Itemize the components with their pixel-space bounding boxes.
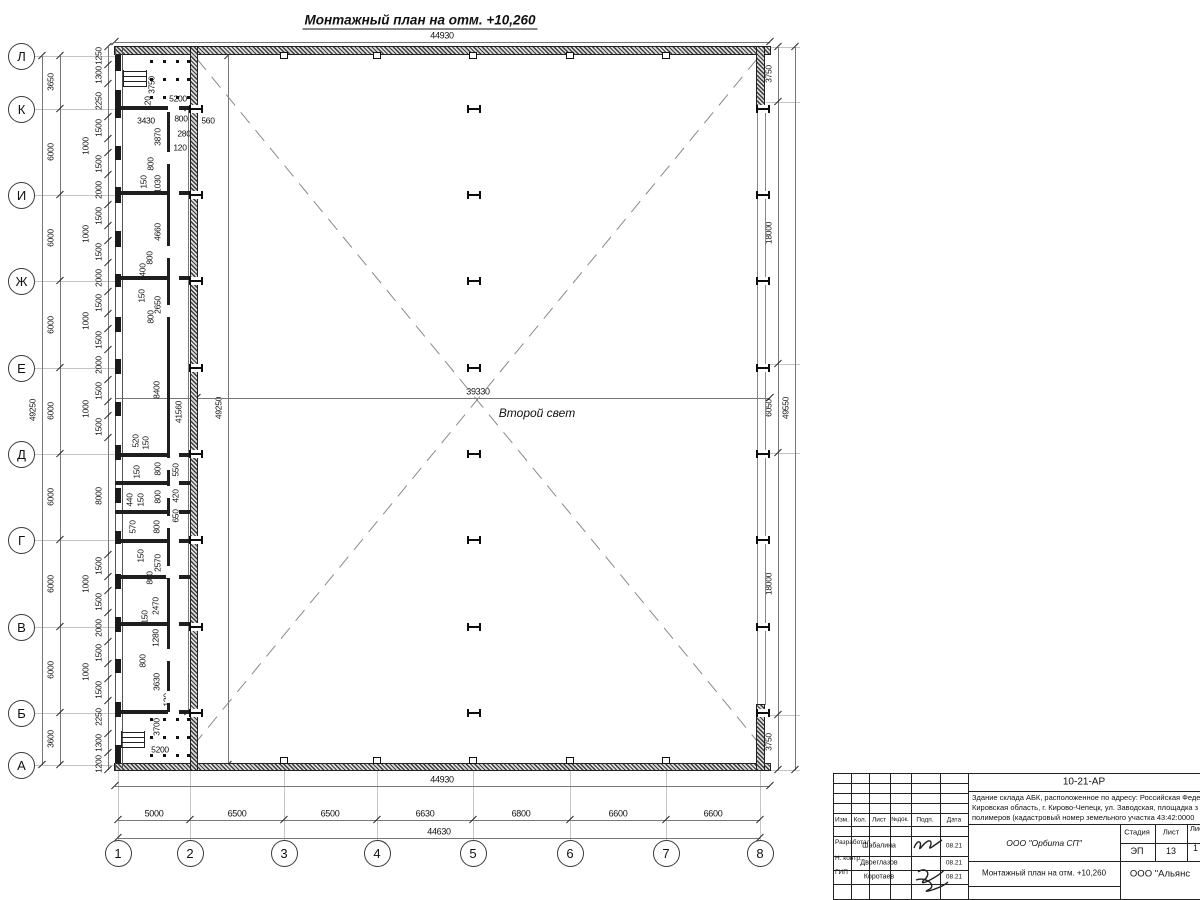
partition-stub	[179, 575, 191, 579]
door-opening	[166, 566, 171, 578]
steel-column-icon	[467, 709, 481, 717]
column-dot	[187, 78, 190, 81]
titleblock-text: 08.21	[946, 874, 962, 881]
column-dot	[163, 736, 166, 739]
wall-column-square	[566, 52, 574, 59]
door-opening	[166, 691, 171, 703]
titleblock-line	[968, 791, 1200, 792]
wall-column-square	[280, 52, 288, 59]
column-dot	[163, 60, 166, 63]
axis-bubble-col: 1	[105, 840, 132, 867]
titleblock-text: 13	[1166, 846, 1176, 856]
column-dot	[163, 96, 166, 99]
axis-bubble-col: 3	[271, 840, 298, 867]
titleblock-line	[833, 813, 968, 814]
window-pier	[115, 574, 121, 589]
steel-column-icon	[189, 277, 203, 285]
titleblock-line	[833, 826, 968, 827]
steel-column-icon	[756, 450, 770, 458]
column-dot	[150, 754, 153, 757]
steel-column-icon	[756, 105, 770, 113]
second-light-label: Второй свет	[499, 406, 575, 420]
window-pier	[115, 359, 121, 374]
steel-column-icon	[756, 623, 770, 631]
steel-column-icon	[189, 450, 203, 458]
titleblock-line	[833, 884, 968, 885]
window-pier	[115, 231, 121, 247]
window-pier	[115, 659, 121, 673]
axis-bubble-row: Б	[8, 700, 35, 727]
column-dot	[163, 718, 166, 721]
axis-bubble-row: Г	[8, 527, 35, 554]
titleblock-text: 1	[1193, 843, 1198, 853]
partition-wall	[115, 510, 168, 514]
column-dot	[176, 60, 179, 63]
steel-column-icon	[467, 623, 481, 631]
stairs-icon	[121, 731, 145, 748]
partition-wall	[115, 622, 168, 626]
steel-column-icon	[189, 536, 203, 544]
titleblock-text: ЭП	[1131, 846, 1144, 856]
column-dot	[187, 736, 190, 739]
titleblock-text: Кировская область, г. Кирово-Чепецк, ул.…	[972, 803, 1198, 812]
door-opening	[166, 649, 171, 661]
titleblock-text: Изм.	[835, 817, 849, 824]
column-dot	[163, 78, 166, 81]
steel-column-icon	[189, 623, 203, 631]
axis-bubble-col: 2	[177, 840, 204, 867]
column-dot	[150, 718, 153, 721]
partition-wall	[115, 106, 168, 110]
titleblock-line	[833, 870, 968, 871]
titleblock-text: Шабалина	[862, 843, 896, 850]
steel-column-icon	[467, 364, 481, 372]
door-opening	[166, 458, 171, 470]
window-pier	[115, 702, 121, 717]
partition-stub	[179, 481, 191, 485]
titleblock-text: Дата	[947, 817, 961, 824]
signature-scribble	[916, 870, 948, 891]
door-opening	[166, 516, 171, 528]
steel-column-icon	[189, 364, 203, 372]
steel-column-icon	[756, 191, 770, 199]
window-pier	[115, 531, 121, 544]
steel-column-icon	[189, 105, 203, 113]
stairs-icon	[123, 70, 147, 87]
plan-title: Монтажный план на отм. +10,260	[303, 13, 538, 30]
wall-column-square	[373, 52, 381, 59]
bottom-wall	[115, 764, 770, 771]
wall-column-square	[566, 757, 574, 764]
titleblock-text: №док.	[891, 817, 909, 823]
titleblock-line	[833, 783, 968, 784]
window-pier	[115, 317, 121, 332]
partition-wall	[115, 191, 168, 195]
axis-bubble-row: Е	[8, 355, 35, 382]
axis-bubble-row: И	[8, 182, 35, 209]
interior-main-wall	[191, 47, 197, 770]
column-dot	[187, 754, 190, 757]
titleblock-line	[968, 824, 1200, 825]
column-dot	[163, 754, 166, 757]
titleblock-text: Н. контр.	[835, 855, 862, 862]
axis-bubble-row: В	[8, 614, 35, 641]
wall-column-square	[373, 757, 381, 764]
signature-scribble	[914, 840, 942, 849]
titleblock-text: Кол.	[854, 817, 867, 824]
titleblock-text: ГИП	[835, 869, 848, 876]
titleblock-text: Стадия	[1124, 828, 1150, 837]
column-dot	[176, 754, 179, 757]
steel-column-icon	[756, 364, 770, 372]
column-dot	[176, 718, 179, 721]
axis-bubble-row: Ж	[8, 268, 35, 295]
axis-bubble-col: 4	[364, 840, 391, 867]
steel-column-icon	[756, 709, 770, 717]
titleblock-line	[1120, 843, 1200, 844]
door-opening	[166, 305, 171, 317]
titleblock-line	[968, 886, 1120, 887]
window-pier	[115, 617, 121, 632]
steel-column-icon	[467, 536, 481, 544]
partition-wall	[115, 276, 168, 280]
wall-column-square	[280, 757, 288, 764]
door-opening	[166, 246, 171, 258]
partition-wall	[115, 575, 168, 579]
axis-bubble-row: А	[8, 752, 35, 779]
column-dot	[150, 736, 153, 739]
steel-column-icon	[467, 450, 481, 458]
titleblock-text: 08.21	[946, 860, 962, 867]
titleblock-text: Лист	[872, 817, 886, 824]
window-pier	[115, 488, 121, 503]
window-pier	[115, 445, 121, 460]
axis-bubble-row: К	[8, 96, 35, 123]
column-dot	[187, 718, 190, 721]
steel-column-icon	[756, 277, 770, 285]
partition-wall	[115, 710, 168, 714]
column-dot	[187, 96, 190, 99]
column-dot	[150, 96, 153, 99]
window-pier	[115, 274, 121, 287]
axis-bubble-row: Л	[8, 43, 35, 70]
titleblock-text: Подп.	[916, 817, 933, 824]
door-opening	[166, 486, 171, 498]
titleblock-text: ООО "Альянс	[1130, 869, 1190, 880]
titleblock-text: 10-21-АР	[1063, 777, 1105, 788]
right-wall-top	[757, 47, 764, 110]
steel-column-icon	[189, 709, 203, 717]
titleblock-text: Монтажный план на отм. +10,260	[982, 869, 1106, 878]
axis-bubble-col: 6	[557, 840, 584, 867]
drawing-sheet: Монтажный план на отм. +10,260 Второй св…	[0, 0, 1200, 900]
steel-column-icon	[756, 536, 770, 544]
axis-bubble-row: Д	[8, 441, 35, 468]
titleblock-line	[833, 803, 968, 804]
axis-bubble-col: 5	[460, 840, 487, 867]
steel-column-icon	[189, 191, 203, 199]
titleblock-text: Двоеглазов	[860, 860, 897, 867]
titleblock-line	[833, 836, 968, 837]
column-dot	[150, 60, 153, 63]
column-dot	[176, 736, 179, 739]
axis-bubble-col: 8	[747, 840, 774, 867]
titleblock-text: полимеров (кадастровый номер земельного …	[972, 813, 1194, 822]
column-dot	[176, 78, 179, 81]
titleblock-line	[968, 861, 1200, 862]
window-pier	[115, 402, 121, 416]
window-pier	[115, 187, 121, 203]
partition-wall	[115, 481, 168, 485]
titleblock-text: 08.21	[946, 843, 962, 850]
column-dot	[187, 60, 190, 63]
wall-column-square	[469, 52, 477, 59]
titleblock-line	[833, 773, 1200, 774]
titleblock-text: ООО "Орбита СП"	[1006, 838, 1081, 848]
titleblock-text: Листов	[1190, 824, 1200, 833]
partition-wall	[115, 539, 168, 543]
steel-column-icon	[467, 191, 481, 199]
axis-bubble-col: 7	[653, 840, 680, 867]
titleblock-line	[833, 793, 968, 794]
door-opening	[166, 152, 171, 164]
titleblock-text: Коротаев	[864, 874, 894, 881]
steel-column-icon	[467, 277, 481, 285]
partition-wall	[115, 453, 168, 457]
column-dot	[176, 96, 179, 99]
right-opening	[757, 110, 766, 705]
window-pier	[115, 146, 121, 160]
wall-column-square	[469, 757, 477, 764]
top-wall	[115, 47, 770, 54]
window-pier	[115, 90, 121, 118]
wall-column-square	[662, 52, 670, 59]
steel-column-icon	[467, 105, 481, 113]
titleblock-text: Лист	[1163, 828, 1179, 837]
wall-column-square	[662, 757, 670, 764]
window-pier	[115, 55, 121, 71]
partition-stub	[179, 510, 191, 514]
titleblock-text: Здание склада АБК, расположенное по адре…	[972, 793, 1200, 802]
column-dot	[150, 78, 153, 81]
